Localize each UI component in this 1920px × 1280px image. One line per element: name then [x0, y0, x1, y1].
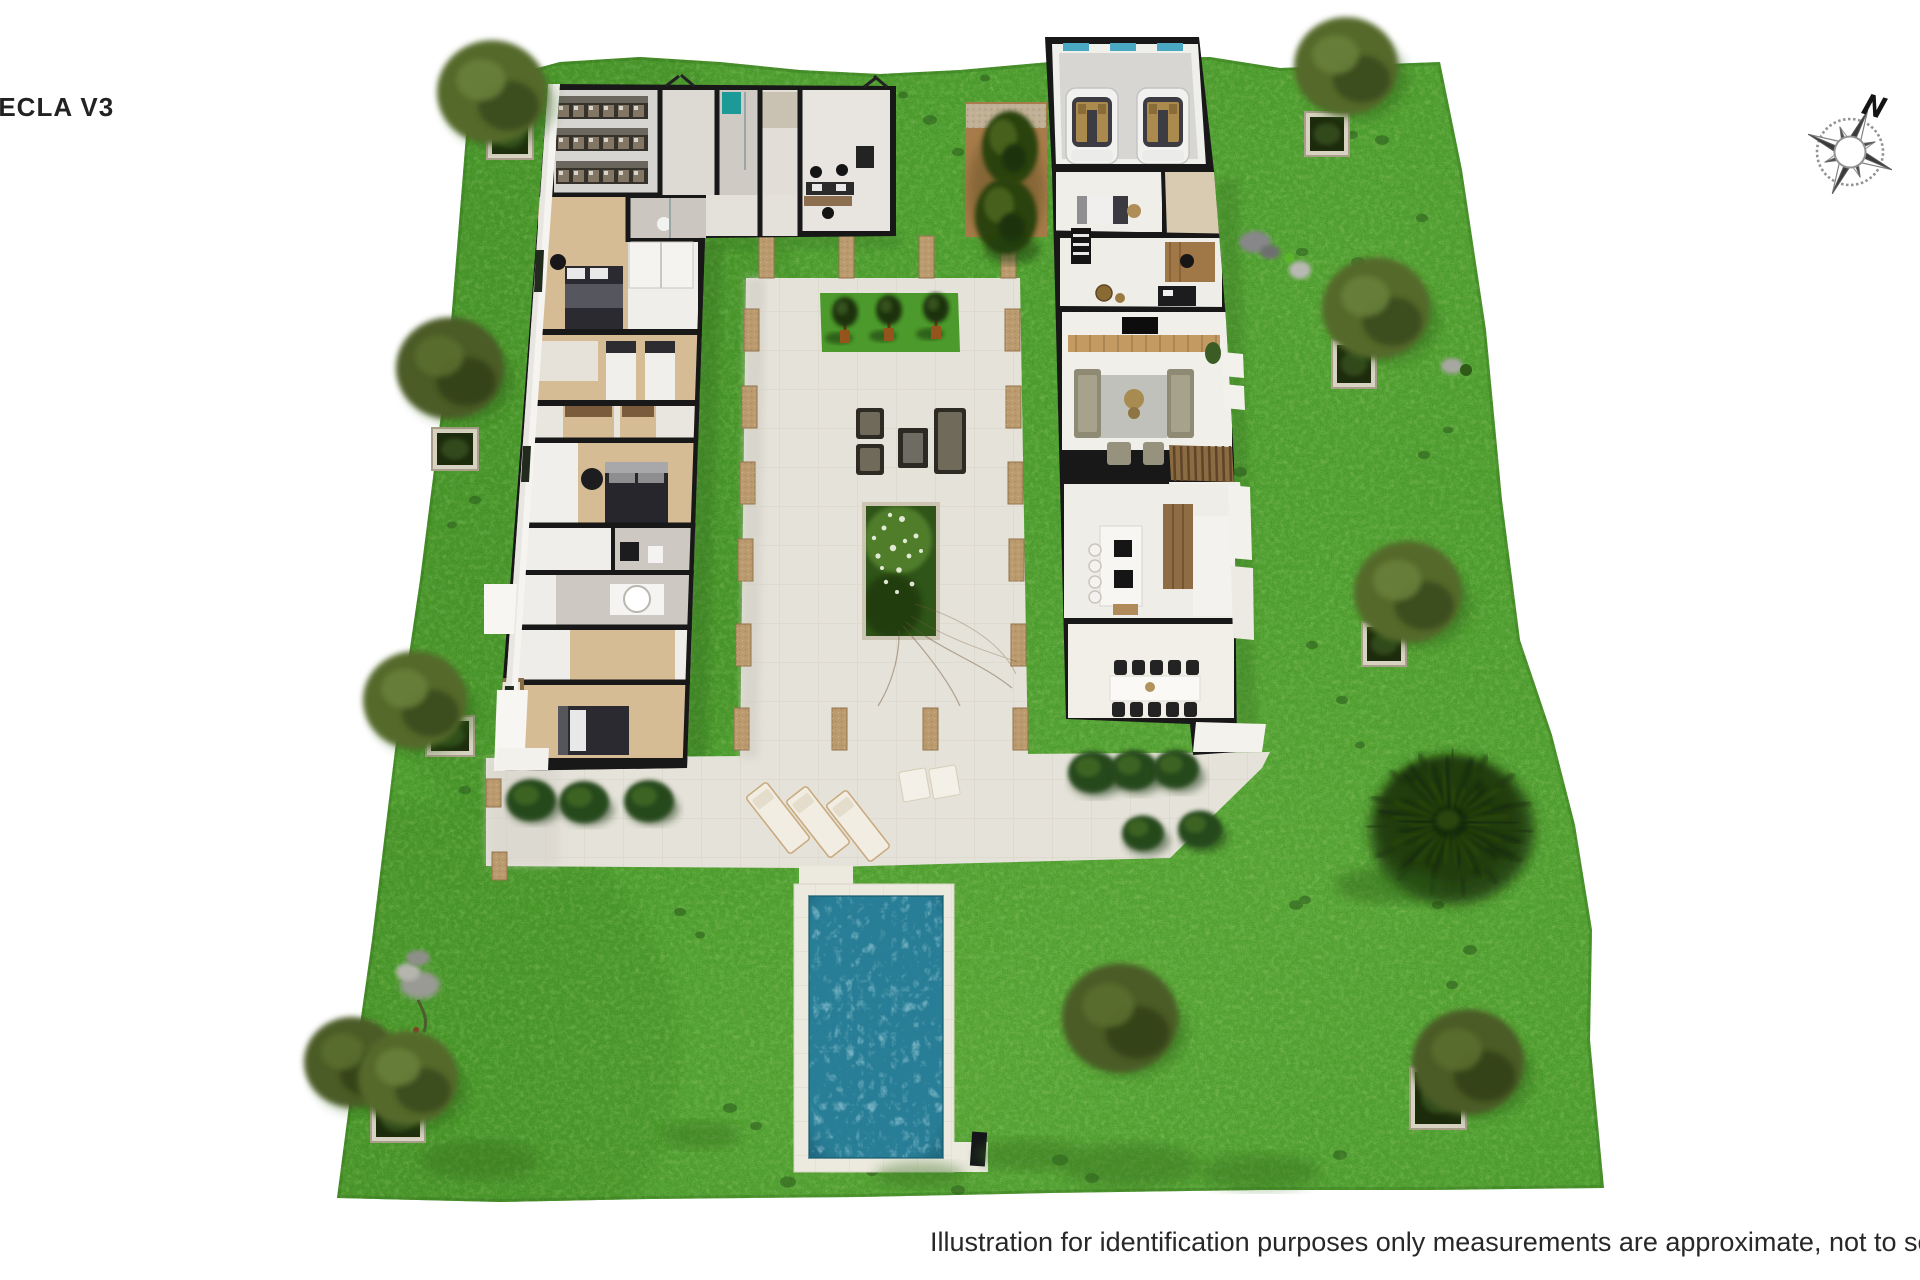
svg-text:YECLA V3: YECLA V3	[0, 92, 114, 122]
svg-text:Illustration for identificatio: Illustration for identification purposes…	[930, 1227, 1920, 1257]
